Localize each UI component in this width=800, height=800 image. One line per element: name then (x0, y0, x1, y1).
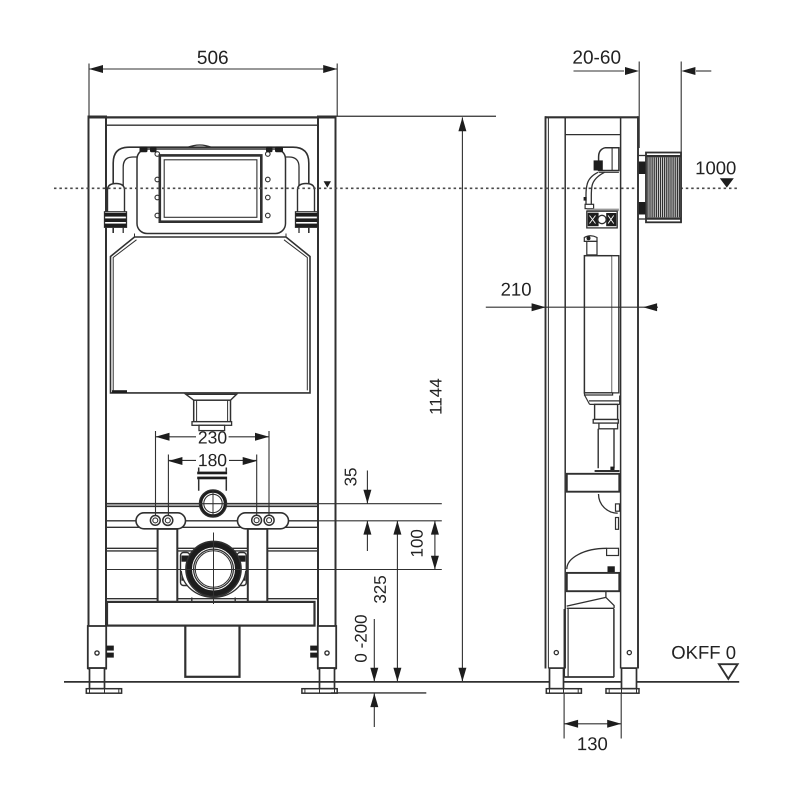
svg-text:1144: 1144 (426, 378, 445, 415)
svg-text:506: 506 (197, 48, 229, 69)
svg-text:0 -200: 0 -200 (352, 614, 371, 662)
svg-text:20-60: 20-60 (572, 48, 621, 69)
svg-text:210: 210 (501, 279, 532, 300)
svg-text:1000: 1000 (695, 157, 736, 178)
svg-text:230: 230 (198, 427, 227, 447)
svg-text:325: 325 (371, 575, 390, 603)
svg-text:35: 35 (341, 467, 360, 486)
svg-text:OKFF 0: OKFF 0 (671, 642, 736, 663)
svg-text:130: 130 (577, 733, 608, 754)
svg-text:100: 100 (408, 529, 427, 557)
svg-text:180: 180 (198, 450, 227, 470)
